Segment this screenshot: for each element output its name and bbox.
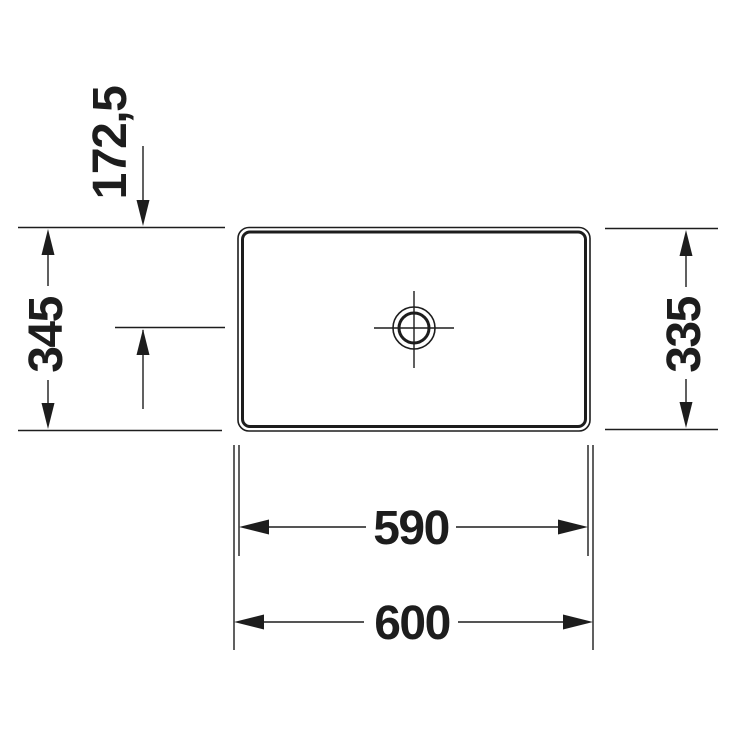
arrow-left-icon: [234, 615, 264, 630]
arrow-right-icon: [558, 520, 588, 535]
arrow-up-icon: [137, 329, 150, 355]
arrow-up-icon: [680, 230, 693, 256]
dim-label-inner-width: 590: [373, 502, 449, 555]
drawing-canvas: 172,5 345 335 590: [0, 0, 737, 737]
arrow-down-icon: [42, 403, 55, 429]
dim-label-overall-depth: 345: [20, 296, 73, 372]
extension-lines: [18, 228, 718, 651]
arrow-down-icon: [680, 402, 693, 428]
dim-label-overall-width: 600: [374, 597, 450, 650]
dimension-345: 345: [20, 229, 73, 429]
drain: [374, 291, 454, 368]
arrow-down-icon: [137, 200, 150, 226]
washbasin-dimension-drawing: 172,5 345 335 590: [0, 0, 737, 737]
dim-label-drain-offset: 172,5: [84, 86, 137, 199]
dimension-590: 590: [239, 502, 588, 555]
dimension-335: 335: [658, 230, 711, 428]
arrow-left-icon: [239, 520, 269, 535]
dimension-172-5: 172,5: [84, 86, 150, 409]
arrow-up-icon: [42, 229, 55, 255]
arrow-right-icon: [563, 615, 593, 630]
dimension-600: 600: [234, 597, 593, 650]
dim-label-inner-depth: 335: [658, 296, 711, 372]
